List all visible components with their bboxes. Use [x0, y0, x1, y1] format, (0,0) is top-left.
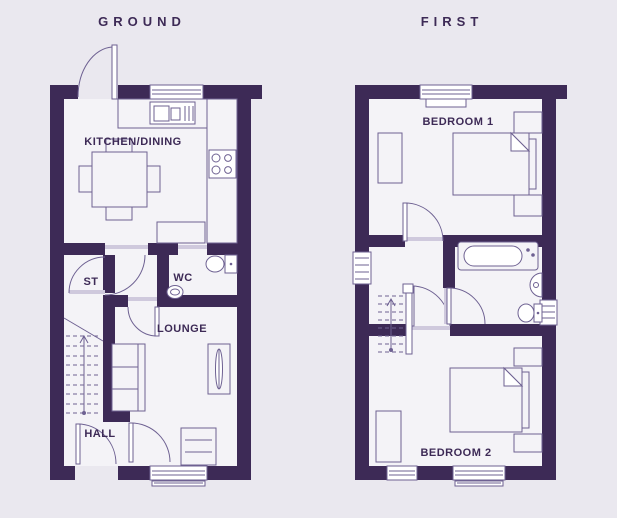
- wash-basin: [167, 286, 183, 299]
- back-door: [78, 45, 117, 99]
- window-bathroom: [540, 300, 557, 325]
- wc-door: [178, 245, 207, 249]
- room-label-wc: WC: [173, 272, 192, 284]
- floor-plan-first: FIRST: [353, 14, 567, 486]
- room-label-kitchen-dining: KITCHEN/DINING: [84, 136, 181, 148]
- tv-unit: [208, 344, 230, 394]
- sofa: [112, 344, 145, 411]
- bath: [458, 242, 538, 270]
- room-label-bedroom2: BEDROOM 2: [420, 447, 491, 459]
- window-bedroom2-small: [387, 466, 417, 480]
- floor-plan-ground: GROUND: [50, 14, 262, 486]
- headboard-bedroom1: [529, 139, 536, 189]
- floorplan-drawing: GROUND: [0, 0, 617, 518]
- room-label-st: ST: [83, 276, 98, 288]
- window-lounge: [150, 466, 207, 486]
- window-landing: [353, 252, 371, 284]
- bed-bedroom1: [453, 133, 536, 195]
- bathroom-toilet: [518, 304, 542, 322]
- window-bedroom2-large: [453, 466, 505, 486]
- headboard-bedroom2: [522, 372, 529, 428]
- bedside-table: [514, 112, 542, 133]
- room-label-lounge: LOUNGE: [157, 323, 207, 335]
- bedside-table: [514, 195, 542, 216]
- floor-title-first: FIRST: [421, 14, 484, 29]
- kitchen-unit: [157, 222, 205, 243]
- room-label-hall: HALL: [84, 428, 115, 440]
- room-label-bedroom1: BEDROOM 1: [422, 116, 493, 128]
- armchair: [181, 428, 216, 465]
- bedside-table: [514, 434, 542, 452]
- floor-title-ground: GROUND: [98, 14, 186, 29]
- bedside-table: [514, 348, 542, 366]
- wardrobe-bedroom2: [376, 411, 401, 462]
- kitchen-sink: [150, 102, 195, 124]
- window-bedroom1: [420, 85, 472, 107]
- wardrobe-bedroom1: [378, 133, 402, 183]
- bed-bedroom2: [450, 368, 529, 432]
- floorplan-page: GROUND: [0, 0, 617, 518]
- hob: [209, 150, 236, 178]
